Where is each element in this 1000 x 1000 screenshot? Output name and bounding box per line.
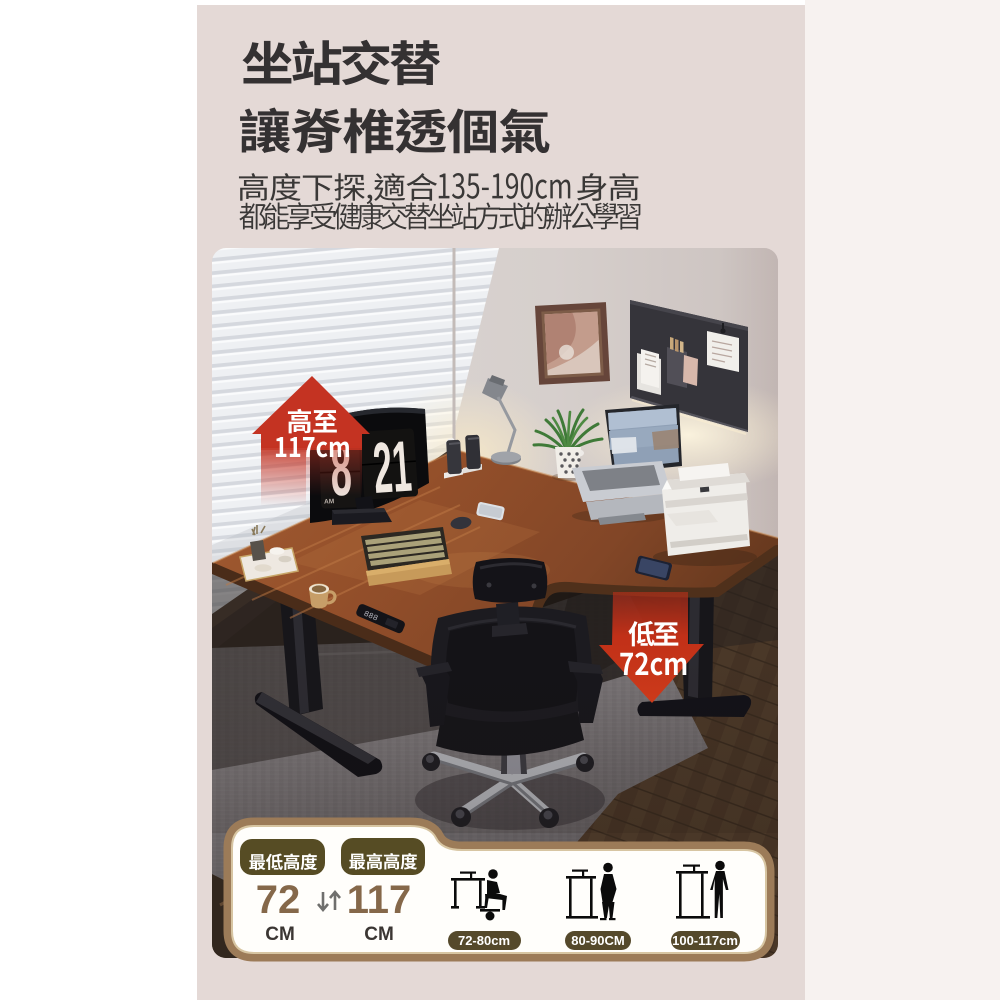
svg-text:80-90CM: 80-90CM [571,933,624,948]
svg-text:72-80cm: 72-80cm [458,933,510,948]
svg-text:117: 117 [347,878,412,922]
svg-text:100-117cm: 100-117cm [672,933,738,948]
svg-text:21: 21 [371,425,414,508]
svg-text:AM: AM [324,498,334,505]
svg-text:CM: CM [265,924,295,945]
svg-text:72: 72 [256,878,301,922]
svg-text:CM: CM [364,924,394,945]
